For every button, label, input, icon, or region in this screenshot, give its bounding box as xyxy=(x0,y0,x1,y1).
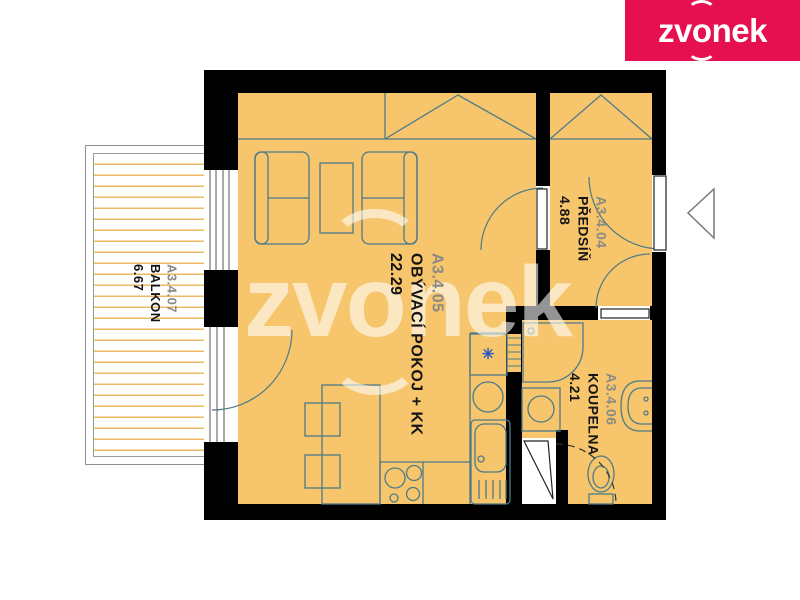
wall-top xyxy=(204,70,666,93)
room-code: A3.4.06 xyxy=(602,373,620,456)
wall-bottom xyxy=(204,504,666,520)
living-door-opening xyxy=(536,186,550,250)
room-name: KOUPELNA xyxy=(584,373,602,456)
room-area: 6.67 xyxy=(129,264,146,323)
logo-text: nek xyxy=(712,12,767,50)
balcony-door-opening xyxy=(204,327,238,442)
room-label-koupelna: A3.4.06 KOUPELNA 4.21 xyxy=(566,373,621,456)
room-code: A3.4.04 xyxy=(592,196,610,262)
logo-text: o xyxy=(692,12,712,49)
entrance-door-opening xyxy=(652,175,666,252)
room-label-obyvaci-pokoj: A3.4.05 OBÝVACÍ POKOJ + KK 22.29 xyxy=(384,253,446,436)
room-code: A3.4.05 xyxy=(426,253,447,436)
bathroom-door-opening xyxy=(598,306,650,320)
wall-right xyxy=(652,70,666,520)
logo-text: zv xyxy=(658,12,692,50)
entrance-arrow-icon xyxy=(688,189,714,238)
room-area: 4.21 xyxy=(566,373,584,456)
room-area: 4.88 xyxy=(556,196,574,262)
window-living-room xyxy=(204,170,238,270)
room-area: 22.29 xyxy=(384,253,405,436)
zvonek-logo: zvonek xyxy=(625,0,800,61)
room-name: OBÝVACÍ POKOJ + KK xyxy=(405,253,426,436)
logo-o-with-arcs: o xyxy=(692,12,712,50)
freezer-star-icon: ✳ xyxy=(477,345,499,363)
room-code: A3.4.07 xyxy=(163,264,180,323)
room-name: BALKON xyxy=(146,264,163,323)
room-label-predsin: A3.4.04 PŘEDSÍŇ 4.88 xyxy=(556,196,611,262)
wall-left xyxy=(204,70,238,520)
bathroom-entry-niche xyxy=(522,438,556,504)
duct-shaft xyxy=(507,334,521,372)
room-name: PŘEDSÍŇ xyxy=(574,196,592,262)
floor-plan-page: ✳ zvonek A3.4.07 BALKON 6.67 A3.4.05 OBÝ… xyxy=(0,0,800,600)
room-label-balkon: A3.4.07 BALKON 6.67 xyxy=(129,264,180,323)
